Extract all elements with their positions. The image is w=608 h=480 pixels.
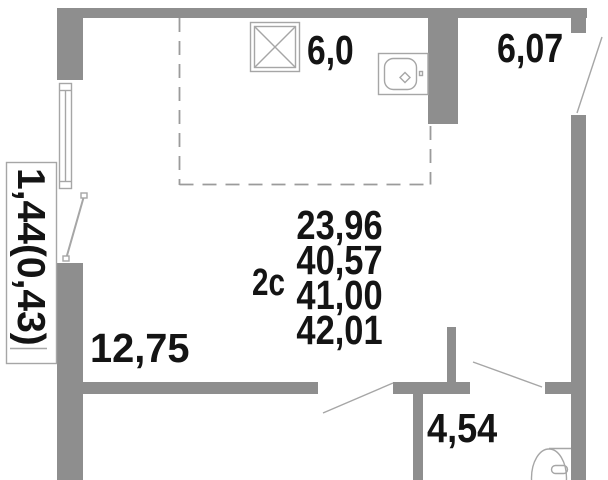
wall-corner-top-right — [571, 18, 586, 33]
room-upper-right-area-label: 6,07 — [497, 28, 563, 69]
window-icon — [60, 84, 72, 189]
wall-stub-bathroom — [447, 327, 456, 382]
balcony-door-swing — [66, 196, 84, 259]
wall-right — [571, 115, 586, 480]
wall-kitchen-divider — [428, 17, 458, 124]
vent-shaft-icon — [251, 23, 300, 72]
wall-mid-right — [545, 382, 571, 394]
kitchen-zone-area-label: 6,0 — [307, 30, 354, 71]
wall-mid-center — [393, 382, 470, 394]
right-door-swing — [577, 37, 602, 113]
kitchen-zone-dashed-boundary — [180, 18, 431, 185]
wall-left — [57, 263, 83, 480]
balcony-door-hinge-cap — [81, 193, 87, 198]
toilet-bowl — [532, 449, 567, 480]
floor-plan: 6,0 6,07 12,75 4,54 1,44(0,43) 2с 23,96 … — [0, 0, 608, 480]
total-area-stack: 23,96 40,57 41,00 42,01 — [297, 208, 383, 348]
sink-icon — [379, 54, 429, 95]
bathroom-area-label: 4,54 — [427, 408, 497, 449]
hall-door-swing — [323, 383, 393, 413]
balcony-area-label: 1,44(0,43) — [11, 168, 50, 346]
wall-bathroom-left — [413, 394, 423, 480]
wall-pier-top-left — [57, 8, 83, 80]
bathroom-door-swing — [473, 362, 542, 387]
balcony-door-end-cap — [63, 256, 69, 261]
total-area-value: 42,01 — [297, 313, 383, 348]
wall-top — [57, 8, 587, 18]
living-room-area-label: 12,75 — [90, 328, 190, 369]
toilet-icon — [532, 449, 572, 480]
wall-mid-left — [83, 382, 318, 394]
apartment-type-label: 2с — [252, 264, 285, 302]
